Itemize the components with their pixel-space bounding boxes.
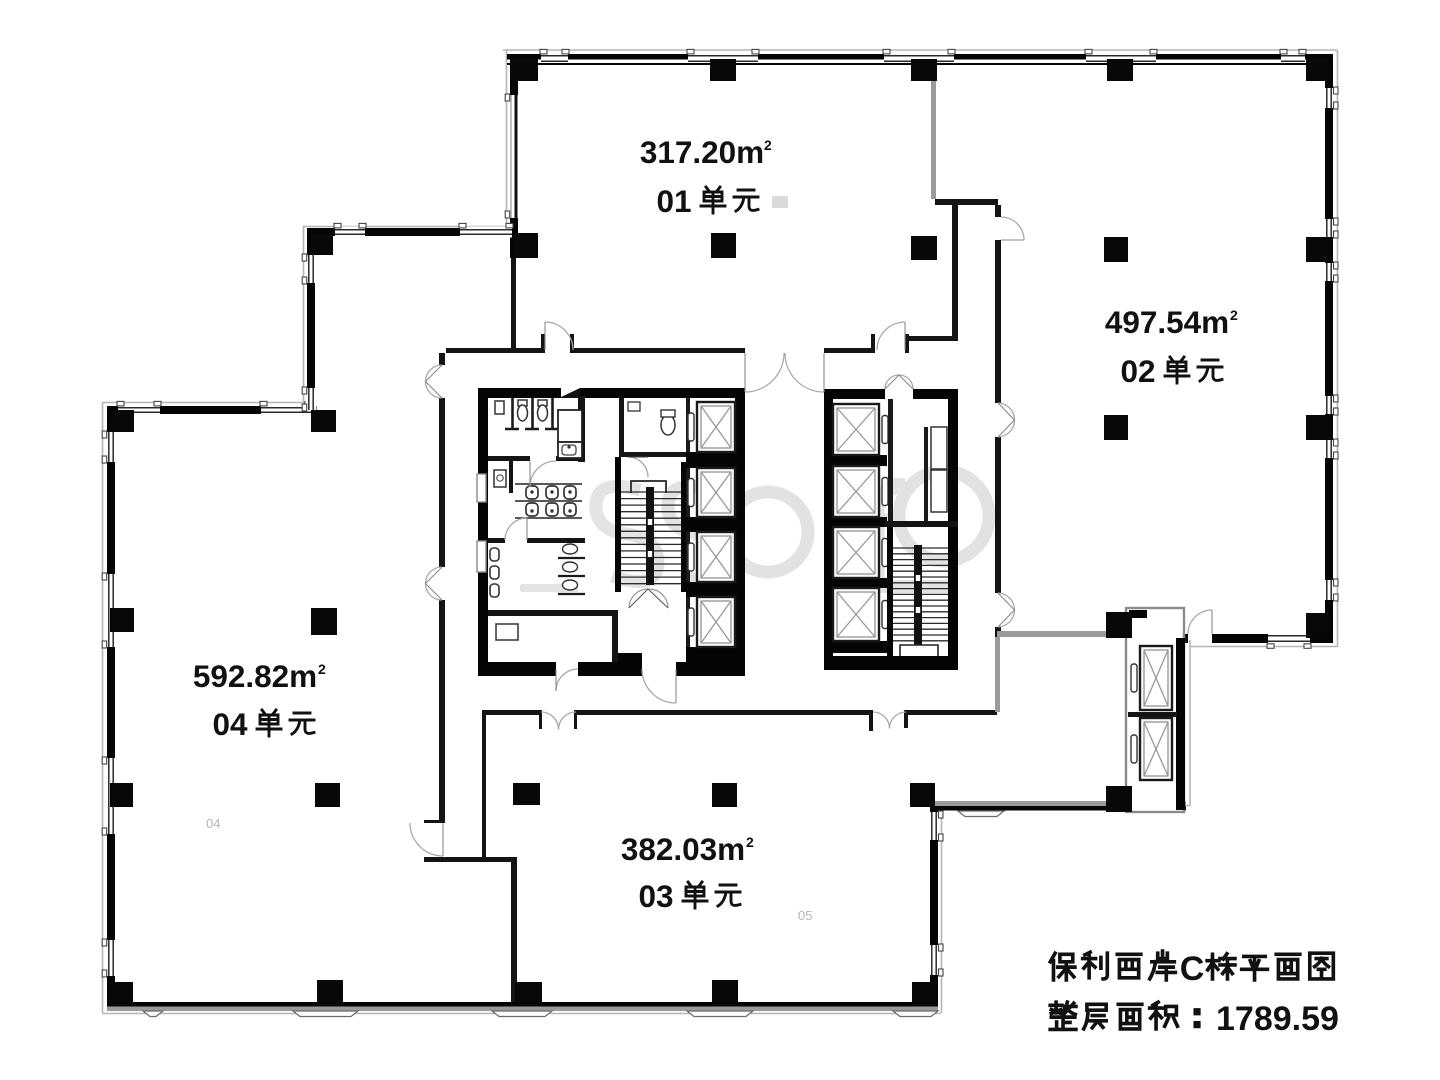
svg-text:2: 2 xyxy=(1230,307,1238,323)
svg-text:04: 04 xyxy=(206,816,220,831)
svg-text:02: 02 xyxy=(1120,353,1155,389)
svg-text:03: 03 xyxy=(638,878,673,914)
svg-text:2: 2 xyxy=(764,137,772,153)
svg-text:C: C xyxy=(1180,950,1205,988)
svg-text:382.03m: 382.03m xyxy=(621,831,745,867)
svg-text:592.82m: 592.82m xyxy=(193,658,317,694)
svg-text:01: 01 xyxy=(656,183,691,219)
svg-text:2: 2 xyxy=(746,834,754,850)
svg-text:317.20m: 317.20m xyxy=(640,134,764,170)
svg-text:2: 2 xyxy=(318,661,326,677)
svg-text:1789.59: 1789.59 xyxy=(1216,1000,1339,1038)
svg-text:04: 04 xyxy=(212,706,248,742)
svg-text:497.54m: 497.54m xyxy=(1105,304,1229,340)
svg-text:05: 05 xyxy=(798,908,812,923)
